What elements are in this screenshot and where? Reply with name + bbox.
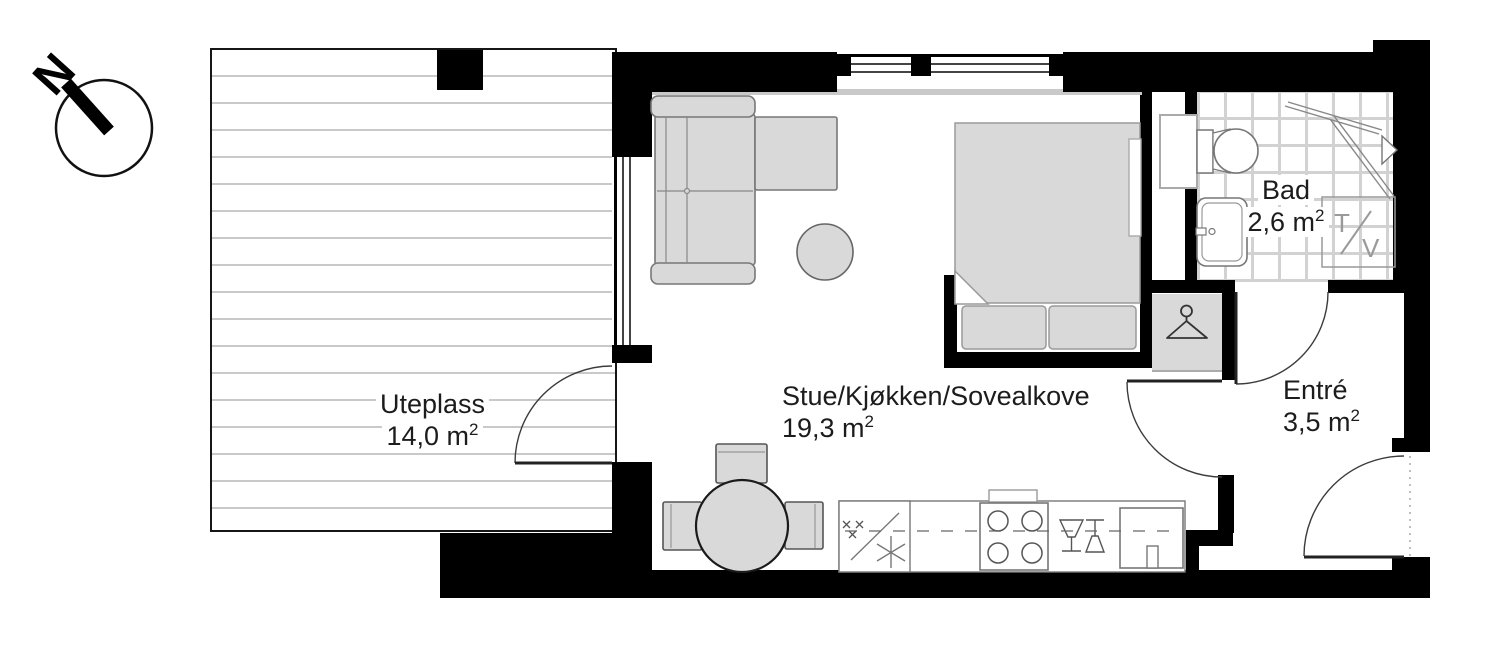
room-label-entre: Entré 3,5 m2 [1283, 374, 1360, 439]
coffee-table [797, 224, 853, 280]
room-label-uteplass: Uteplass 14,0 m2 [345, 388, 520, 453]
room-name: Entré [1283, 375, 1348, 405]
toilet [1197, 129, 1258, 173]
bed-duvet [955, 123, 1140, 303]
washer-label-t: T [1334, 208, 1350, 238]
entrance-door-arc [1304, 456, 1404, 556]
dining-set [663, 444, 823, 572]
plan-vector-overlay: N [0, 0, 1507, 654]
bed-side-ledge [1129, 139, 1141, 236]
stove-hood [989, 490, 1037, 502]
bed-pillow-right [1049, 306, 1136, 349]
room-name: Bad [1258, 175, 1314, 205]
shaft-cabinet [1160, 115, 1197, 188]
chair-top [716, 444, 767, 483]
chair-right [785, 502, 823, 549]
sofa-armrest-top [651, 96, 755, 117]
terrace-door-arc [515, 366, 612, 463]
hanger-icon [1167, 306, 1207, 339]
sofa-body [655, 114, 755, 265]
fridge-handle [1147, 546, 1158, 568]
room-label-bad: Bad 2,6 m2 [1238, 174, 1334, 239]
room-area: 19,3 m2 [782, 413, 874, 443]
dining-table [696, 480, 788, 572]
kitchen-counter [839, 490, 1185, 572]
faucet-icon [1196, 228, 1206, 235]
room-area: 3,5 m2 [1283, 407, 1360, 437]
bed-pillow-left [962, 306, 1046, 349]
room-area: 2,6 m2 [1244, 207, 1329, 237]
sofa-armrest-bottom [651, 263, 755, 284]
floor-plan: N [0, 0, 1507, 654]
room-label-stue: Stue/Kjøkken/Sovealkove 19,3 m2 [782, 380, 1090, 445]
washer-label-v: V [1362, 233, 1380, 263]
bed [955, 123, 1141, 349]
sofa-chaise [755, 117, 837, 190]
bathroom-door-arc [1236, 292, 1328, 384]
room-name: Uteplass [376, 389, 489, 419]
compass: N [23, 44, 152, 176]
room-name: Stue/Kjøkken/Sovealkove [782, 381, 1090, 411]
hall-door-arc [1127, 382, 1222, 477]
shower-arrow-icon [1382, 136, 1397, 164]
room-area: 14,0 m2 [382, 421, 482, 451]
